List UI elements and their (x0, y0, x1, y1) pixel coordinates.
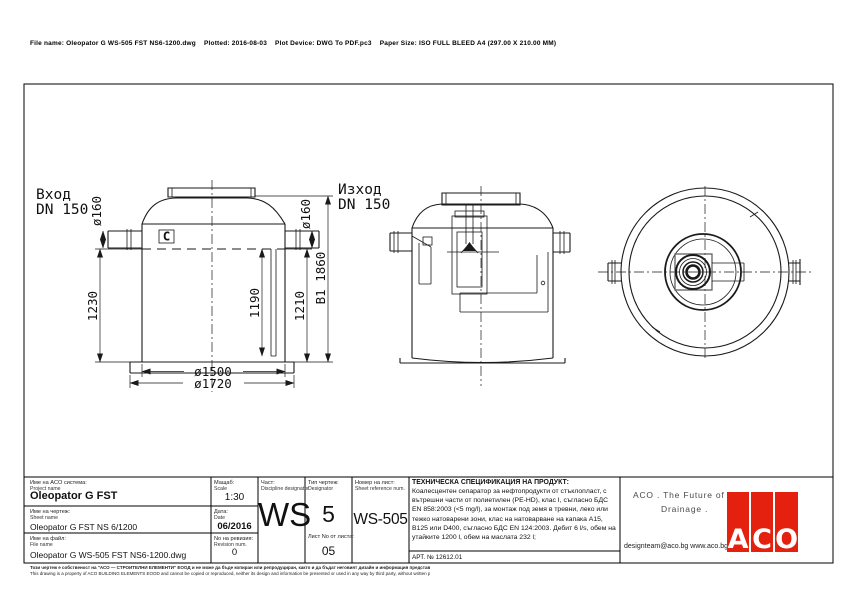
outlet-dn: DN 150 (338, 197, 390, 213)
dim-height-left: 1230 (85, 291, 100, 321)
file-name-value: Oleopator G WS-505 FST NS6-1200.dwg (30, 550, 186, 560)
dim-inlet-dia: ø160 (89, 196, 104, 226)
sheet-name-value: Oleopator G FST NS 6/1200 (30, 522, 137, 532)
scale-value: 1:30 (211, 492, 258, 503)
dim-height-right: 1210 (292, 291, 307, 321)
dim-base-dia: ø1720 (194, 376, 232, 391)
aco-logo-bar: C (751, 492, 773, 552)
revision-value: 0 (211, 547, 258, 558)
type-value: 5 (305, 503, 352, 526)
sheet-ref-value: WS-505 (352, 512, 409, 528)
disclaimer-en: This drawing is a property of ACO BUILDI… (30, 571, 430, 576)
sheet-name-label: Име на чертеж: Sheet name (30, 509, 70, 521)
dim-height-inner: 1190 (247, 288, 262, 318)
drawing-sheet: File name: Oleopator G WS-505 FST NS6-12… (0, 0, 842, 595)
baffle-icon-glyph: C (163, 229, 171, 244)
date-value: 06/2016 (211, 521, 258, 532)
section-view (390, 186, 570, 386)
spec-title: ТЕХНИЧЕСКА СПЕЦИФИКАЦИЯ НА ПРОДУКТ: (412, 479, 617, 486)
coalescence-filter-unit (447, 205, 499, 294)
type-label: Тип чертеж: Designator (308, 480, 339, 492)
aco-logo-bar: O (775, 492, 798, 552)
sheet-no-label: Лист No от листа: (308, 534, 354, 540)
spec-body: Коалесцентен сепаратор за нефтопродукти … (412, 487, 617, 550)
plan-view (598, 186, 812, 360)
aco-logo: A C O (727, 492, 798, 552)
discipline-value: WS (258, 498, 305, 531)
dim-overall-height: B1 1860 (313, 252, 328, 305)
side-view-elevation: C ø160 1230 1190 1210 B1 1860 ø1 (36, 180, 390, 392)
discipline-label: Част: Discipline designator (261, 480, 309, 492)
sheet-ref-label: Номер на лист: Sheet reference num. (355, 480, 405, 492)
baffle-icon: C (159, 229, 174, 244)
file-name-label: Име на файл: File name (30, 536, 66, 548)
aco-contact: designteam@aco.bg www.aco.bg (624, 543, 728, 550)
date-label: Дата: Date (214, 509, 228, 521)
outlet-label: Изход (338, 182, 382, 198)
dim-outlet-dia: ø160 (298, 199, 313, 229)
project-name-value: Oleopator G FST (30, 490, 117, 502)
inlet-dn: DN 150 (36, 202, 88, 218)
aco-slogan-line2: Drainage . (661, 504, 708, 514)
disclaimer-bg: Този чертеж е собственост на "АСО — СТРО… (30, 565, 430, 570)
spec-article-number: АРТ. № 12612.01 (412, 554, 462, 561)
sheet-no-value: 05 (305, 544, 352, 558)
aco-logo-bar: A (727, 492, 749, 552)
inlet-label: Вход (36, 187, 71, 203)
scale-label: Мащаб: Scale (214, 480, 234, 492)
aco-slogan-line1: ACO . The Future of (633, 490, 725, 500)
